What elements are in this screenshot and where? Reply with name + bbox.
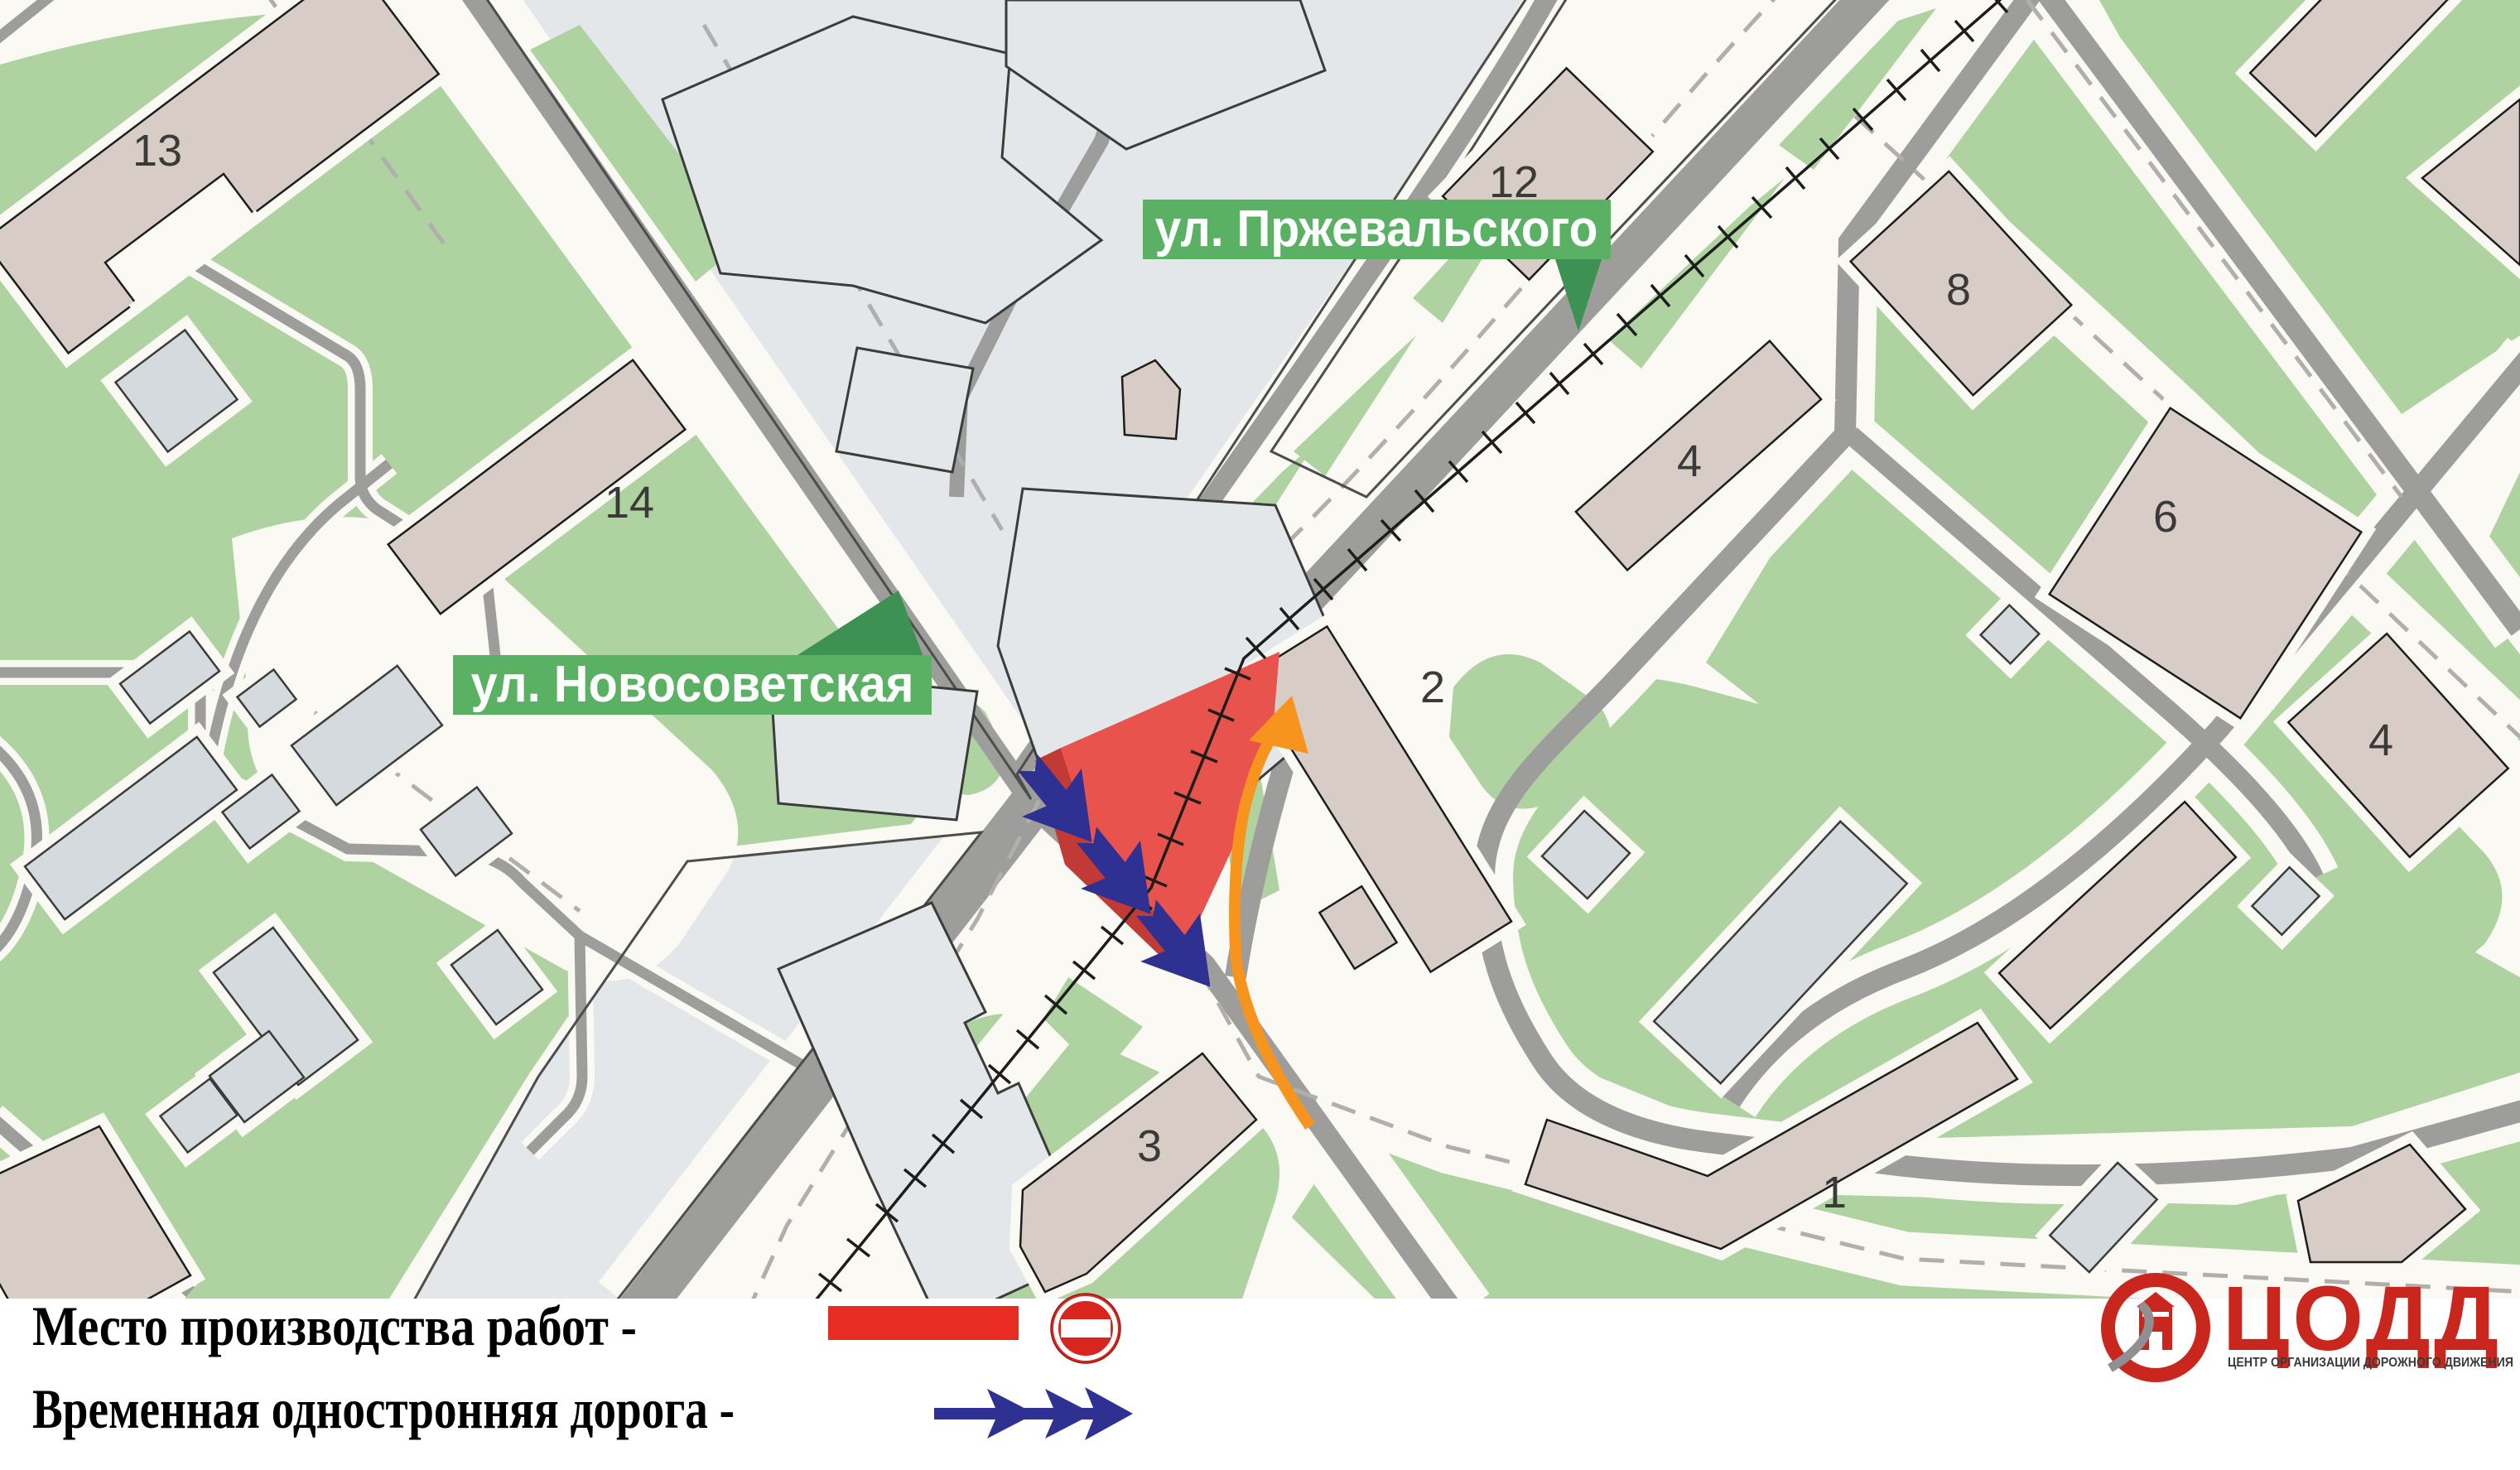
svg-text:14: 14: [605, 478, 654, 528]
svg-text:2: 2: [1420, 663, 1445, 712]
svg-text:Временная одностронняя дорога: Временная одностронняя дорога -: [32, 1377, 735, 1440]
svg-text:4: 4: [1677, 436, 1702, 486]
svg-text:1: 1: [1822, 1168, 1847, 1217]
svg-text:Место производства работ -: Место производства работ -: [32, 1294, 637, 1357]
svg-text:ул. Пржевальского: ул. Пржевальского: [1155, 200, 1598, 258]
svg-text:6: 6: [2153, 492, 2178, 542]
svg-text:8: 8: [1946, 265, 1971, 315]
svg-text:ул. Новосоветская: ул. Новосоветская: [471, 656, 914, 713]
svg-text:13: 13: [133, 126, 182, 176]
svg-text:ЦОДД: ЦОДД: [2223, 1268, 2502, 1370]
svg-text:4: 4: [2368, 716, 2393, 765]
svg-text:ЦЕНТР ОРГАНИЗАЦИИ ДОРОЖНОГО ДВ: ЦЕНТР ОРГАНИЗАЦИИ ДОРОЖНОГО ДВИЖЕНИЯ: [2228, 1356, 2513, 1370]
svg-text:3: 3: [1137, 1121, 1162, 1171]
svg-text:12: 12: [1489, 157, 1539, 207]
